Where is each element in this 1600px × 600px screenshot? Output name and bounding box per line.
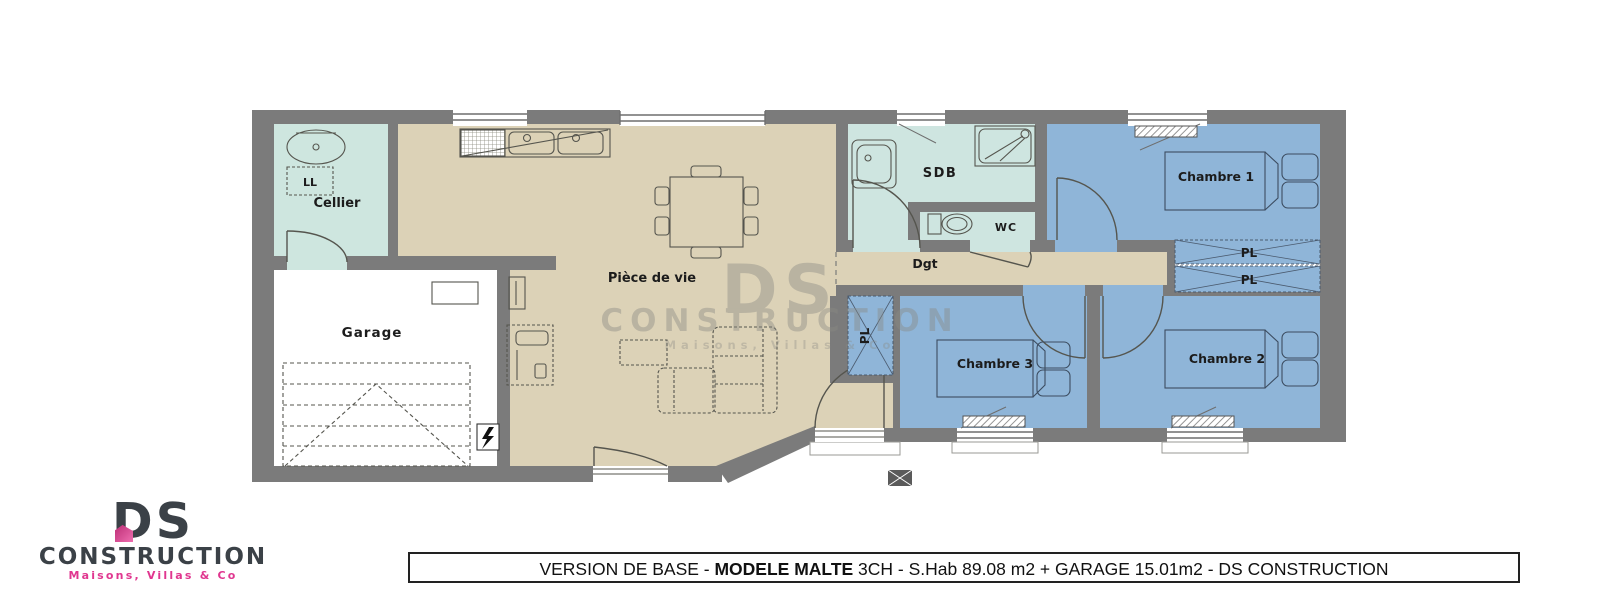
watermark-tagline: Maisons, Villas & Co (665, 338, 896, 352)
label-washer: LL (303, 176, 317, 189)
watermark-name: CONSTRUCTION (600, 303, 959, 339)
logo-monogram: DS (35, 498, 271, 546)
company-logo: DS CONSTRUCTION Maisons, Villas & Co (35, 498, 271, 583)
window-sills (810, 442, 1248, 455)
label-living: Pièce de vie (608, 271, 696, 286)
entry-step (810, 442, 900, 455)
label-closet-2: PL (1241, 273, 1258, 287)
title-banner: VERSION DE BASE - MODELE MALTE 3CH - S.H… (408, 552, 1520, 583)
banner-suffix: 3CH - S.Hab 89.08 m2 + GARAGE 15.01m2 - … (853, 559, 1388, 579)
banner-model: MODELE MALTE (714, 559, 853, 579)
bedroom1-floor (1047, 124, 1320, 252)
label-bedroom3: Chambre 3 (957, 356, 1033, 371)
floorplan-page: Cellier Garage Pièce de vie SDB WC Dgt C… (0, 0, 1600, 600)
banner-prefix: VERSION DE BASE - (539, 559, 714, 579)
plan-symbol-icon (888, 470, 912, 486)
electrical-panel-icon (477, 424, 499, 450)
label-closet-1: PL (1241, 246, 1258, 260)
label-wc: WC (995, 221, 1017, 234)
label-bedroom1: Chambre 1 (1178, 169, 1254, 184)
kitchen-window (453, 108, 527, 126)
logo-tagline: Maisons, Villas & Co (35, 569, 271, 583)
living-bay-window (620, 108, 765, 126)
garage-floor (274, 270, 497, 466)
label-cellier: Cellier (314, 196, 362, 211)
logo-name: CONSTRUCTION (35, 546, 271, 568)
label-garage: Garage (342, 325, 403, 341)
label-bedroom2: Chambre 2 (1189, 351, 1265, 366)
label-sdb: SDB (923, 166, 958, 181)
label-hall: Dgt (912, 256, 937, 271)
